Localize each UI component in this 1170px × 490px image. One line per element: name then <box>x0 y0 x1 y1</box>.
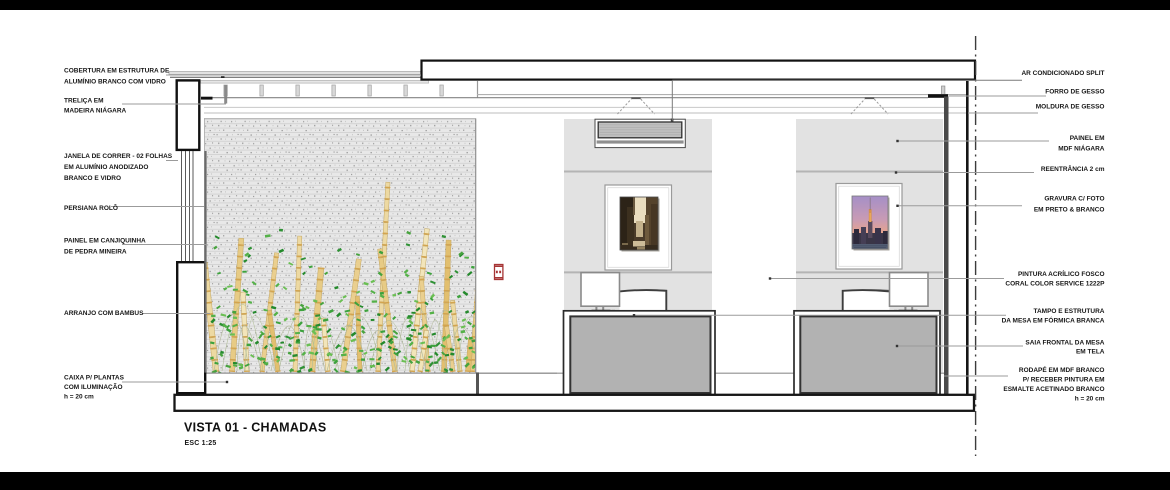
svg-text:REENTRÂNCIA 2 cm: REENTRÂNCIA 2 cm <box>1041 164 1105 173</box>
svg-text:CORAL COLOR SERVICE 1222P: CORAL COLOR SERVICE 1222P <box>1005 281 1105 288</box>
svg-text:COM ILUMINAÇÃO: COM ILUMINAÇÃO <box>64 382 123 391</box>
svg-text:AR CONDICIONADO SPLIT: AR CONDICIONADO SPLIT <box>1021 70 1104 77</box>
svg-text:ARRANJO COM BAMBUS: ARRANJO COM BAMBUS <box>64 310 144 317</box>
svg-text:ESC 1:25: ESC 1:25 <box>185 440 217 447</box>
svg-text:MOLDURA DE GESSO: MOLDURA DE GESSO <box>1036 104 1105 111</box>
svg-text:MADEIRA NIÁGARA: MADEIRA NIÁGARA <box>64 106 127 115</box>
svg-text:DE PEDRA MINEIRA: DE PEDRA MINEIRA <box>64 249 127 256</box>
svg-text:P/ RECEBER PINTURA EM: P/ RECEBER PINTURA EM <box>1023 377 1105 384</box>
svg-text:RODAPÉ EM MDF BRANCO: RODAPÉ EM MDF BRANCO <box>1019 365 1105 374</box>
svg-text:BRANCO E VIDRO: BRANCO E VIDRO <box>64 175 121 182</box>
svg-text:PAINEL EM CANJIQUINHA: PAINEL EM CANJIQUINHA <box>64 238 146 245</box>
svg-text:GRAVURA C/ FOTO: GRAVURA C/ FOTO <box>1044 196 1104 203</box>
svg-text:PERSIANA ROLÔ: PERSIANA ROLÔ <box>64 203 118 212</box>
svg-text:COBERTURA EM ESTRUTURA DE: COBERTURA EM ESTRUTURA DE <box>64 68 170 75</box>
svg-text:PAINEL EM: PAINEL EM <box>1070 135 1105 142</box>
svg-text:TRELIÇA EM: TRELIÇA EM <box>64 98 103 105</box>
svg-text:EM TELA: EM TELA <box>1076 349 1105 356</box>
svg-text:SAIA FRONTAL DA MESA: SAIA FRONTAL DA MESA <box>1025 340 1104 347</box>
svg-text:h = 20 cm: h = 20 cm <box>1075 396 1105 403</box>
svg-text:MDF NIÁGARA: MDF NIÁGARA <box>1058 144 1105 153</box>
svg-text:PINTURA ACRÍLICO FOSCO: PINTURA ACRÍLICO FOSCO <box>1018 269 1105 278</box>
svg-text:h = 20 cm: h = 20 cm <box>64 394 94 401</box>
svg-text:CAIXA P/ PLANTAS: CAIXA P/ PLANTAS <box>64 375 125 382</box>
svg-text:FORRO DE GESSO: FORRO DE GESSO <box>1045 89 1104 96</box>
svg-text:TAMPO E ESTRUTURA: TAMPO E ESTRUTURA <box>1033 308 1104 315</box>
svg-text:VISTA 01 - CHAMADAS: VISTA 01 - CHAMADAS <box>184 421 327 435</box>
svg-text:EM ALUMÍNIO ANODIZADO: EM ALUMÍNIO ANODIZADO <box>64 162 148 171</box>
svg-text:DA MESA EM FÓRMICA BRANCA: DA MESA EM FÓRMICA BRANCA <box>1002 316 1105 325</box>
svg-text:ESMALTE ACETINADO BRANCO: ESMALTE ACETINADO BRANCO <box>1003 386 1104 393</box>
svg-text:JANELA DE CORRER - 02 FOLHAS: JANELA DE CORRER - 02 FOLHAS <box>64 153 173 160</box>
svg-text:ALUMÍNIO BRANCO COM VIDRO: ALUMÍNIO BRANCO COM VIDRO <box>64 77 166 86</box>
svg-text:EM PRETO & BRANCO: EM PRETO & BRANCO <box>1034 207 1105 214</box>
